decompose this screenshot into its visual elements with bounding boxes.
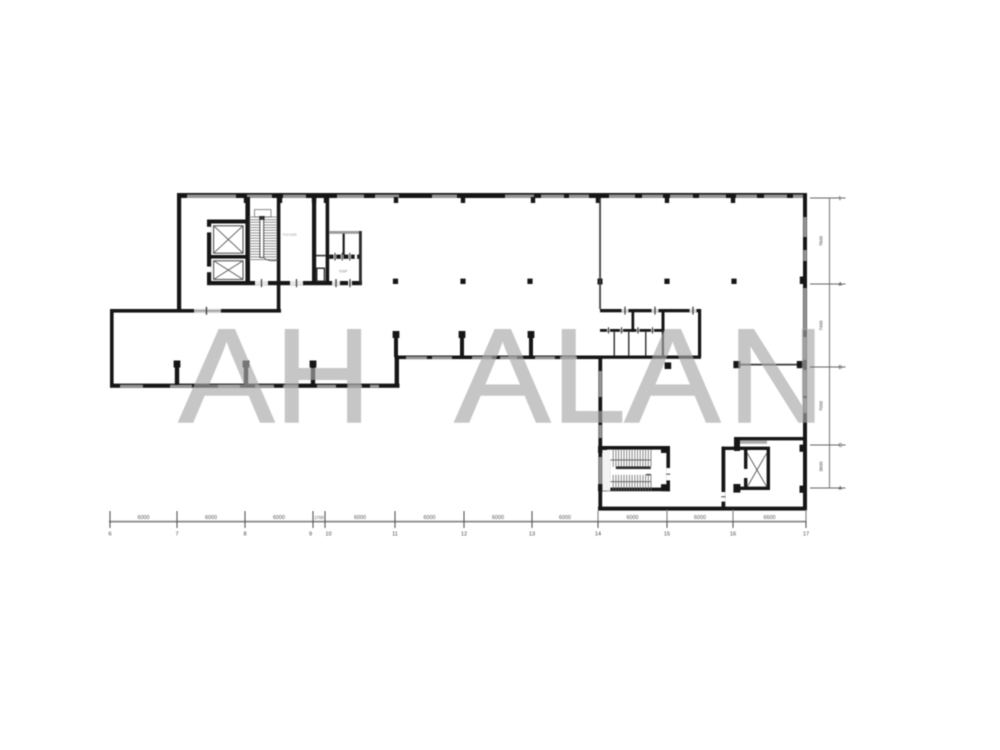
svg-text:6000: 6000 — [138, 515, 150, 521]
svg-text:11: 11 — [392, 532, 398, 538]
svg-text:6000: 6000 — [205, 515, 217, 521]
svg-text:7: 7 — [175, 532, 178, 538]
svg-text:6600: 6600 — [764, 515, 776, 521]
svg-text:14: 14 — [595, 532, 601, 538]
svg-text:A: A — [179, 302, 276, 451]
svg-text:13: 13 — [529, 532, 535, 538]
svg-text:L: L — [552, 302, 627, 451]
svg-text:17: 17 — [803, 532, 809, 538]
svg-text:6000: 6000 — [354, 515, 366, 521]
svg-text:C: C — [839, 443, 843, 449]
svg-text:6: 6 — [108, 532, 111, 538]
svg-text:7000: 7000 — [819, 400, 824, 411]
svg-text:8: 8 — [243, 532, 246, 538]
svg-text:N: N — [728, 302, 825, 451]
svg-text:12: 12 — [461, 532, 467, 538]
svg-text:6000: 6000 — [424, 515, 436, 521]
svg-text:15: 15 — [664, 532, 670, 538]
svg-text:9: 9 — [309, 532, 312, 538]
svg-text:1: 1 — [839, 196, 842, 202]
svg-text:6000: 6000 — [273, 515, 285, 521]
svg-text:A: A — [625, 302, 722, 451]
svg-text:A: A — [455, 302, 552, 451]
svg-text:6000: 6000 — [559, 515, 571, 521]
svg-text:7400: 7400 — [819, 320, 824, 331]
svg-text:3600: 3600 — [819, 461, 824, 472]
svg-text:16: 16 — [730, 532, 736, 538]
svg-text:H: H — [275, 302, 372, 451]
svg-text:6000: 6000 — [694, 515, 706, 521]
svg-text:6000: 6000 — [492, 515, 504, 521]
svg-text:6000: 6000 — [627, 515, 639, 521]
svg-text:FOYER: FOYER — [283, 233, 297, 237]
svg-text:1700: 1700 — [314, 515, 324, 520]
svg-text:TEMP: TEMP — [339, 270, 348, 274]
svg-text:7600: 7600 — [819, 235, 824, 246]
svg-text:10: 10 — [325, 532, 331, 538]
